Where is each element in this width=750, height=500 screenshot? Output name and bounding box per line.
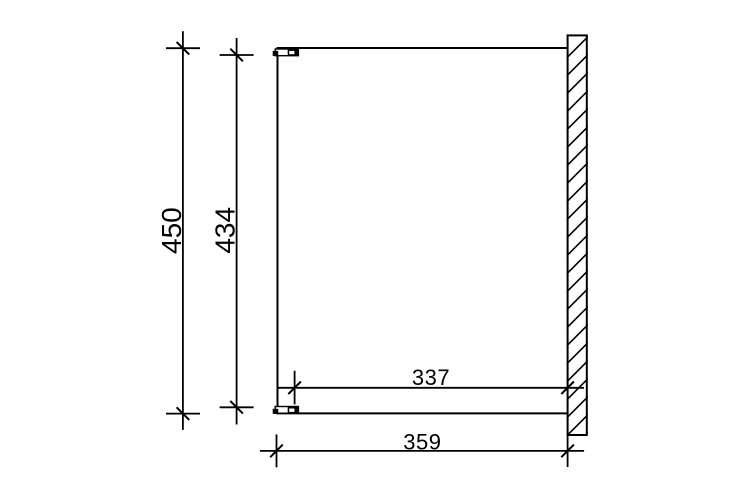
svg-text:434: 434 bbox=[209, 207, 240, 254]
svg-text:359: 359 bbox=[403, 430, 441, 455]
svg-text:337: 337 bbox=[412, 365, 450, 390]
svg-text:450: 450 bbox=[156, 207, 187, 254]
